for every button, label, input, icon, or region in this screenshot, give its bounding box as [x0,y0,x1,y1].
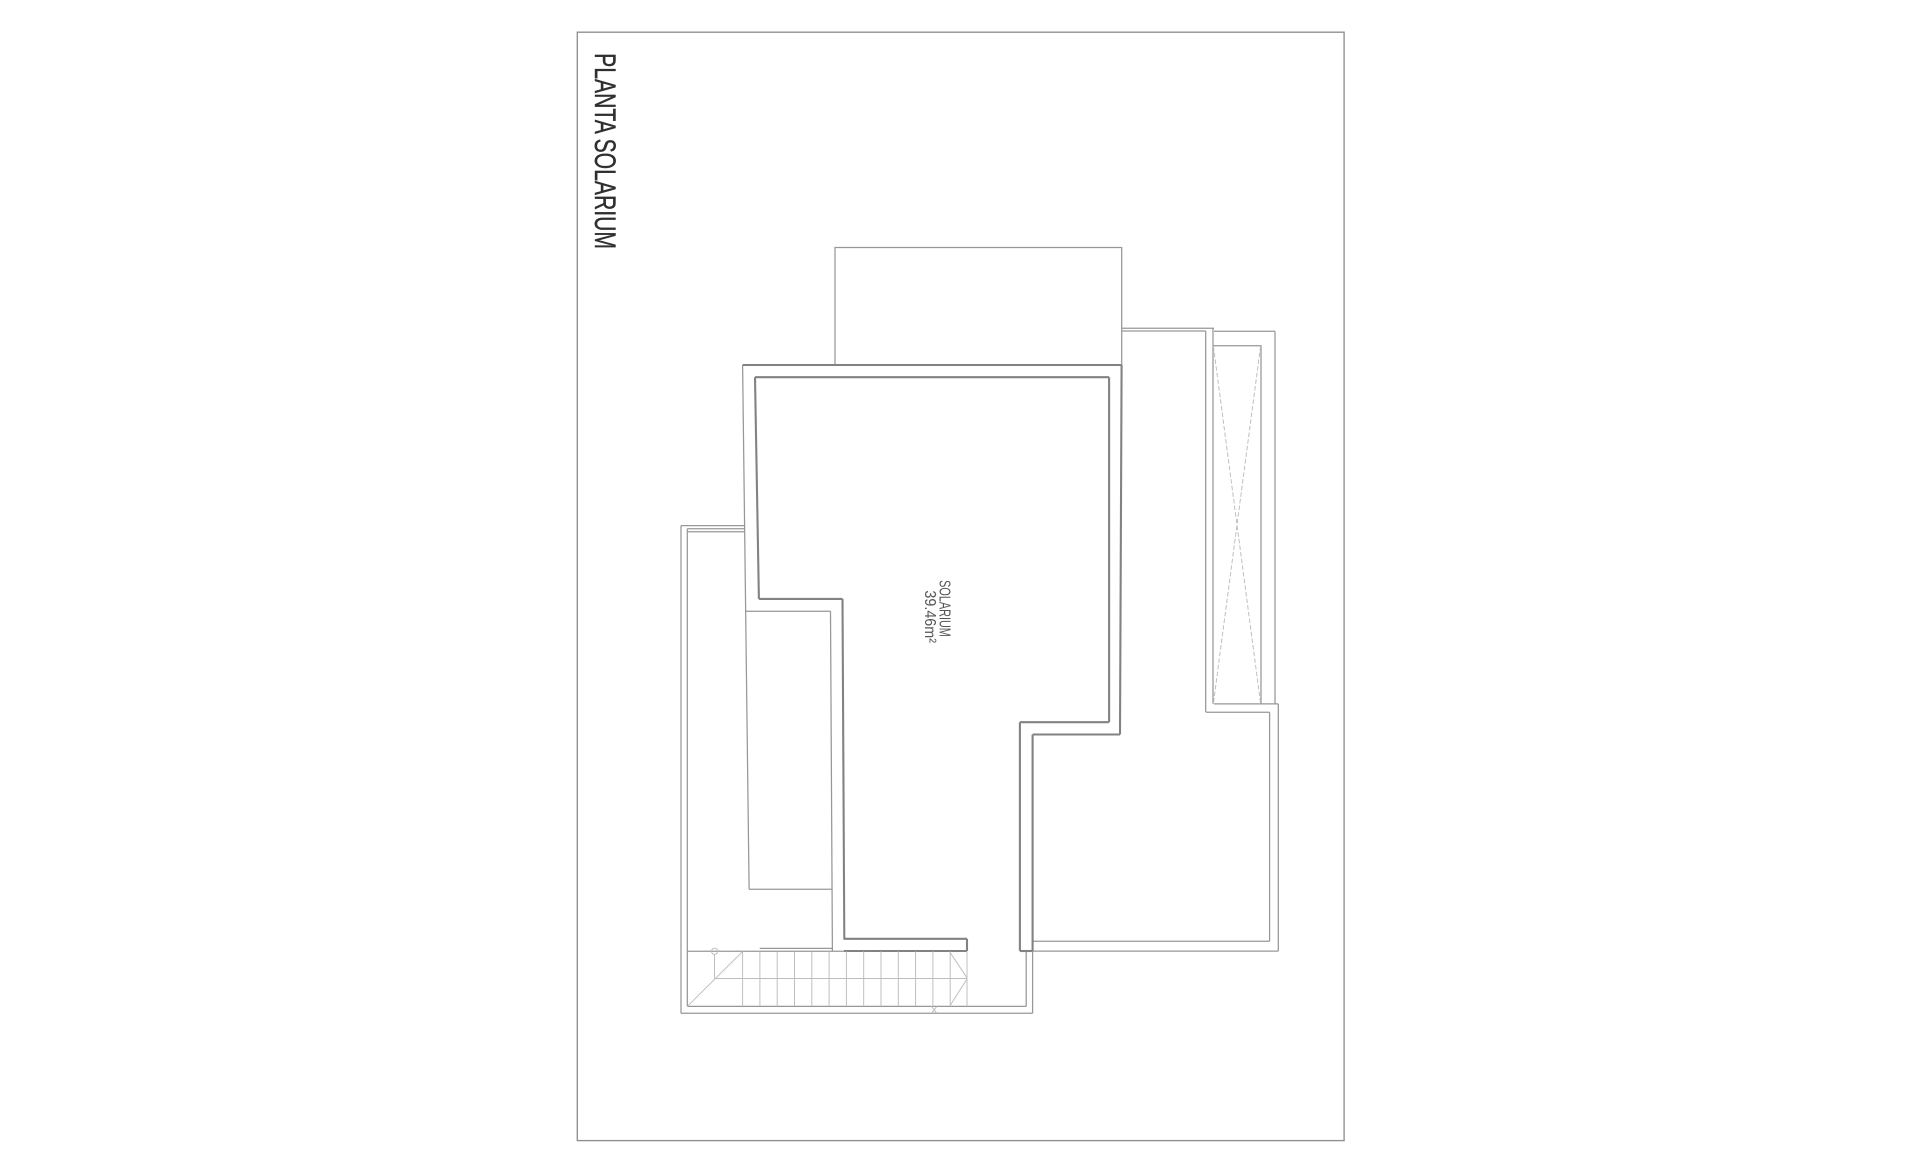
svg-text:39.46m²: 39.46m² [921,590,939,643]
svg-text:PLANTA SOLARIUM: PLANTA SOLARIUM [588,53,620,249]
